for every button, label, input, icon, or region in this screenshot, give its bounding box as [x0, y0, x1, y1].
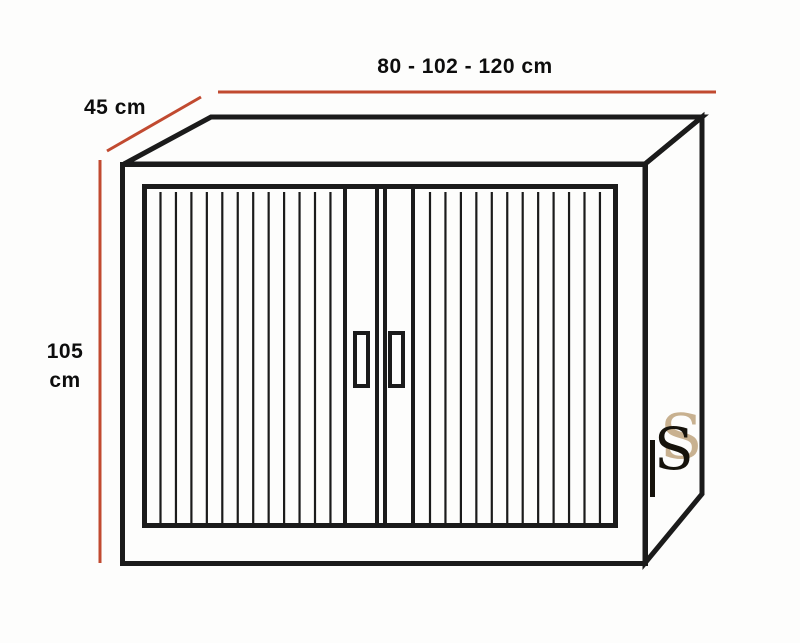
right-door-handle	[390, 333, 403, 386]
logo-s-black-glyph: S	[654, 420, 694, 478]
left-door-handle	[355, 333, 368, 386]
brand-logo: S S	[640, 420, 720, 510]
left-door-slats	[161, 192, 331, 523]
depth-dimension-label: 45 cm	[84, 96, 146, 120]
right-door-slats	[430, 192, 600, 523]
height-dimension-label: 105 cm	[33, 337, 97, 395]
height-value-text: 105	[33, 337, 97, 366]
diagram-canvas: 80 - 102 - 120 cm 45 cm 105 cm S S	[0, 0, 800, 643]
cabinet-top-face	[124, 117, 702, 164]
width-dimension-label: 80 - 102 - 120 cm	[310, 55, 620, 79]
height-unit-text: cm	[33, 366, 97, 395]
door-frame	[145, 187, 616, 526]
